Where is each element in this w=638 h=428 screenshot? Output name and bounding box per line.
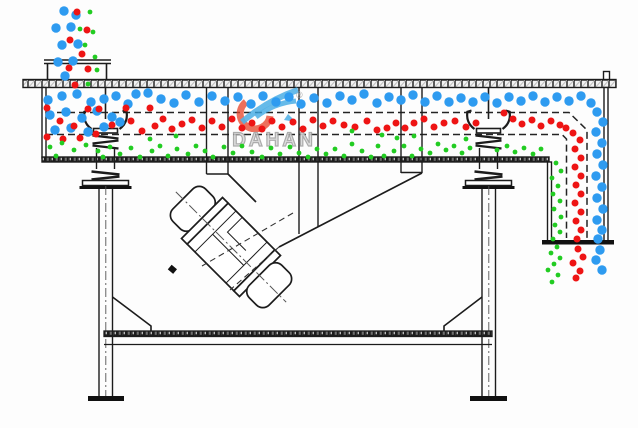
red-particle [573, 275, 580, 282]
blue-particle [194, 97, 203, 106]
green-particle [546, 268, 551, 273]
green-particle [360, 149, 365, 154]
green-particle [551, 192, 556, 197]
red-particle [160, 116, 167, 123]
blue-particle [576, 91, 585, 100]
blue-particle [72, 89, 81, 98]
red-particle [139, 128, 146, 135]
blue-particle [115, 117, 124, 126]
red-particle [573, 182, 580, 189]
red-particle [199, 125, 206, 132]
green-particle [118, 152, 123, 157]
green-particle [269, 146, 274, 151]
red-particle [109, 122, 116, 129]
green-particle [558, 230, 563, 235]
green-particle [468, 146, 473, 151]
green-particle [96, 149, 101, 154]
red-particle [189, 117, 196, 124]
red-particle [44, 105, 51, 112]
red-particle [548, 118, 555, 125]
green-particle [194, 144, 199, 149]
red-particle [557, 122, 564, 129]
green-particle [222, 145, 227, 150]
green-particle [556, 184, 561, 189]
blue-particle [591, 127, 600, 136]
blue-particle [66, 22, 75, 31]
red-particle [152, 123, 159, 130]
green-particle [460, 151, 465, 156]
blue-particle [591, 171, 600, 180]
red-particle [320, 123, 327, 130]
red-particle [501, 110, 508, 117]
blue-particle [592, 149, 601, 158]
green-particle [158, 144, 163, 149]
green-particle [88, 10, 93, 15]
green-particle [556, 273, 561, 278]
green-particle [522, 146, 527, 151]
green-particle [428, 151, 433, 156]
red-particle [67, 37, 74, 44]
red-particle [578, 209, 585, 216]
green-particle [95, 68, 100, 73]
green-particle [558, 256, 563, 261]
green-particle [86, 82, 91, 87]
red-particle [96, 106, 103, 113]
green-particle [495, 148, 500, 153]
green-particle [559, 215, 564, 220]
red-particle [85, 66, 92, 73]
blue-particle [408, 90, 417, 99]
blue-particle [593, 234, 602, 243]
red-particle [229, 116, 236, 123]
red-particle [249, 120, 256, 127]
green-particle [549, 251, 554, 256]
blue-particle [504, 92, 513, 101]
blue-particle [480, 92, 489, 101]
blue-particle [540, 97, 549, 106]
blue-particle [444, 97, 453, 106]
red-particle [77, 135, 84, 142]
green-particle [166, 154, 171, 159]
blue-particle [372, 98, 381, 107]
green-particle [550, 280, 555, 285]
green-particle [60, 141, 65, 146]
red-particle [279, 124, 286, 131]
blue-particle [57, 91, 66, 100]
green-particle [48, 145, 53, 150]
green-particle [350, 142, 355, 147]
green-particle [539, 147, 544, 152]
green-particle [395, 136, 400, 141]
blue-particle [591, 255, 600, 264]
red-particle [179, 121, 186, 128]
green-particle [369, 155, 374, 160]
blue-particle [59, 6, 68, 15]
red-particle [169, 126, 176, 133]
red-particle [209, 118, 216, 125]
green-particle [84, 143, 89, 148]
red-particle [411, 120, 418, 127]
red-particle [393, 120, 400, 127]
green-particle [72, 148, 77, 153]
blue-particle [220, 96, 229, 105]
red-particle [563, 125, 570, 132]
blue-particle [322, 98, 331, 107]
blue-particle [233, 92, 242, 101]
green-particle [278, 152, 283, 157]
blue-particle [516, 96, 525, 105]
blue-particle [598, 204, 607, 213]
red-particle [84, 27, 91, 34]
blue-particle [597, 182, 606, 191]
red-particle [79, 51, 86, 58]
red-particle [575, 246, 582, 253]
green-particle [436, 142, 441, 147]
green-particle [553, 223, 558, 228]
red-particle [463, 124, 470, 131]
red-particle [44, 134, 51, 141]
blue-particle [420, 97, 429, 106]
green-particle [54, 154, 59, 159]
red-particle [85, 106, 92, 113]
red-particle [578, 173, 585, 180]
red-particle [259, 126, 266, 133]
blue-particle [68, 56, 77, 65]
green-particle [392, 149, 397, 154]
blue-particle [60, 71, 69, 80]
green-particle [93, 55, 98, 60]
green-particle [324, 152, 329, 157]
green-particle [306, 155, 311, 160]
red-particle [402, 125, 409, 132]
green-particle [260, 155, 265, 160]
red-particle [341, 122, 348, 129]
blue-particle [53, 57, 62, 66]
green-particle [240, 144, 245, 149]
green-particle [444, 148, 449, 153]
green-particle [203, 149, 208, 154]
red-particle [578, 191, 585, 198]
red-particle [364, 118, 371, 125]
red-particle [310, 117, 317, 124]
red-particle [510, 116, 517, 123]
blue-particle [207, 91, 216, 100]
green-particle [250, 150, 255, 155]
vibrating-screen-diagram: DAHAN ® [0, 0, 638, 428]
red-particle [529, 117, 536, 124]
blue-particle [384, 92, 393, 101]
green-particle [101, 155, 106, 160]
blue-particle [156, 94, 165, 103]
red-particle [452, 118, 459, 125]
green-particle [376, 144, 381, 149]
red-particle [573, 218, 580, 225]
red-particle [128, 118, 135, 125]
green-particle [550, 176, 555, 181]
blue-particle [169, 98, 178, 107]
red-particle [72, 82, 79, 89]
red-particle [570, 260, 577, 267]
blue-particle [492, 98, 501, 107]
green-particle [148, 137, 153, 142]
blue-particle [86, 97, 95, 106]
green-particle [315, 147, 320, 152]
blue-particle [107, 112, 116, 121]
blue-particle [396, 95, 405, 104]
red-particle [580, 254, 587, 261]
green-particle [175, 147, 180, 152]
blue-particle [83, 127, 92, 136]
green-particle [452, 144, 457, 149]
blue-particle [99, 122, 108, 131]
particles-layer [0, 0, 638, 428]
green-particle [186, 152, 191, 157]
green-particle [419, 147, 424, 152]
blue-particle [456, 93, 465, 102]
green-particle [513, 150, 518, 155]
blue-particle [359, 89, 368, 98]
red-particle [71, 123, 78, 130]
green-particle [552, 262, 557, 267]
red-particle [577, 268, 584, 275]
blue-particle [99, 94, 108, 103]
blue-particle [45, 110, 54, 119]
green-particle [402, 144, 407, 149]
red-particle [572, 146, 579, 153]
red-particle [572, 200, 579, 207]
red-particle [66, 65, 73, 72]
red-particle [330, 118, 337, 125]
blue-particle [592, 107, 601, 116]
blue-particle [43, 95, 52, 104]
blue-particle [131, 89, 140, 98]
green-particle [138, 155, 143, 160]
blue-particle [73, 39, 82, 48]
blue-particle [586, 98, 595, 107]
blue-particle [51, 23, 60, 32]
blue-particle [246, 99, 255, 108]
blue-particle [468, 97, 477, 106]
red-particle [374, 127, 381, 134]
green-particle [129, 146, 134, 151]
red-particle [570, 130, 577, 137]
green-particle [231, 151, 236, 156]
blue-particle [528, 91, 537, 100]
green-particle [531, 152, 536, 157]
blue-particle [181, 90, 190, 99]
blue-particle [598, 117, 607, 126]
red-particle [74, 9, 81, 16]
green-particle [410, 154, 415, 159]
green-particle [297, 151, 302, 156]
red-particle [578, 155, 585, 162]
blue-particle [143, 88, 152, 97]
blue-particle [592, 193, 601, 202]
green-particle [211, 155, 216, 160]
green-particle [551, 237, 556, 242]
green-particle [288, 145, 293, 150]
blue-particle [552, 92, 561, 101]
red-particle [93, 131, 100, 138]
green-particle [150, 149, 155, 154]
green-particle [552, 207, 557, 212]
green-particle [91, 30, 96, 35]
green-particle [380, 133, 385, 138]
green-particle [505, 144, 510, 149]
red-particle [421, 116, 428, 123]
green-particle [555, 245, 560, 250]
blue-particle [592, 215, 601, 224]
blue-particle [597, 138, 606, 147]
red-particle [57, 118, 64, 125]
blue-particle [77, 113, 86, 122]
green-particle [83, 43, 88, 48]
blue-particle [347, 95, 356, 104]
blue-particle [309, 93, 318, 102]
red-particle [219, 124, 226, 131]
green-particle [342, 154, 347, 159]
blue-particle [597, 225, 606, 234]
green-particle [350, 129, 355, 134]
green-particle [382, 154, 387, 159]
red-particle [574, 236, 581, 243]
red-particle [290, 119, 297, 126]
red-particle [123, 105, 130, 112]
blue-particle [335, 91, 344, 100]
red-particle [300, 126, 307, 133]
blue-particle [597, 265, 606, 274]
green-particle [78, 27, 83, 32]
green-particle [333, 147, 338, 152]
green-particle [108, 145, 113, 150]
blue-particle [595, 245, 604, 254]
green-particle [174, 134, 179, 139]
blue-particle [296, 99, 305, 108]
blue-particle [271, 97, 280, 106]
red-particle [473, 120, 480, 127]
blue-particle [284, 92, 293, 101]
green-particle [412, 134, 417, 139]
red-particle [519, 121, 526, 128]
red-particle [431, 124, 438, 131]
blue-particle [432, 91, 441, 100]
blue-particle [598, 160, 607, 169]
green-particle [558, 199, 563, 204]
red-particle [147, 105, 154, 112]
blue-particle [564, 96, 573, 105]
red-particle [577, 137, 584, 144]
blue-particle [57, 40, 66, 49]
blue-particle [258, 91, 267, 100]
blue-particle [50, 125, 59, 134]
red-particle [384, 125, 391, 132]
blue-particle [111, 91, 120, 100]
red-particle [269, 118, 276, 125]
red-particle [538, 123, 545, 130]
green-particle [554, 161, 559, 166]
red-particle [239, 125, 246, 132]
green-particle [559, 169, 564, 174]
green-particle [464, 137, 469, 142]
red-particle [441, 120, 448, 127]
blue-particle [61, 107, 70, 116]
red-particle [578, 227, 585, 234]
red-particle [572, 164, 579, 171]
